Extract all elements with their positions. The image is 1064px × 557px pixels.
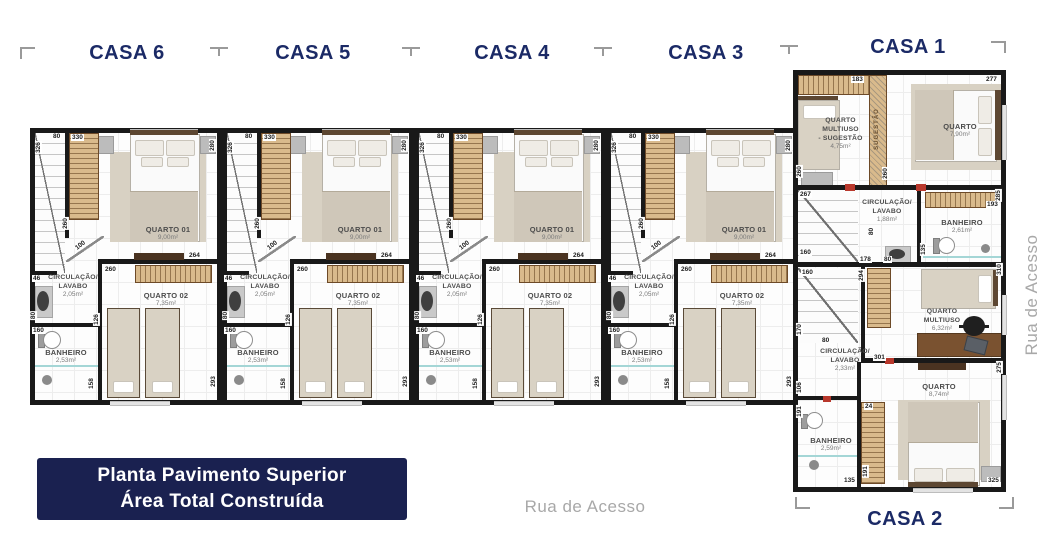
window: [494, 401, 554, 406]
corner-mark-icon: [999, 497, 1014, 509]
dim-label: 293: [402, 375, 409, 388]
unit-casa-3: QUARTO 01 9,00m² CIRCULAÇÃO/ LAVABO 2,05…: [606, 128, 798, 405]
title-box: Planta Pavimento Superior Área Total Con…: [37, 458, 407, 520]
room-label-circulacao: CIRCULAÇÃO/ LAVABO 2,05m²: [44, 273, 102, 299]
window: [686, 401, 746, 406]
dim-label: 264: [188, 252, 201, 259]
dim-label: 46: [224, 275, 233, 282]
header-casa-6: CASA 6: [57, 42, 197, 65]
unit-casa-5: QUARTO 01 9,00m² CIRCULAÇÃO/ LAVABO 2,05…: [222, 128, 414, 405]
dim-label: 80: [52, 133, 61, 140]
headboard: [908, 482, 978, 487]
dim-label: 178: [859, 256, 872, 263]
headboard: [995, 90, 1001, 160]
dresser-icon: [326, 253, 376, 260]
shower-glass: [611, 365, 674, 367]
room-label-circulacao-casa1: CIRCULAÇÃO/ LAVABO 1,88m²: [859, 198, 915, 224]
toilet-icon: [427, 331, 445, 349]
headboard: [798, 96, 838, 100]
wall-left: [793, 70, 798, 492]
room-label-quarto01: QUARTO 01 9,00m²: [509, 225, 595, 242]
dim-label: 267: [799, 191, 812, 198]
wall-left: [606, 128, 611, 405]
room-label-circulacao-casa2: CIRCULAÇÃO/ LAVABO 2,33m²: [817, 347, 873, 373]
toilet-icon: [619, 331, 637, 349]
headboard: [130, 130, 198, 135]
single-bed-icon: [683, 308, 716, 398]
room-label-banheiro-casa2: BANHEIRO 2,59m²: [805, 436, 857, 453]
dim-label: 310: [996, 263, 1003, 276]
room-label-circulacao: CIRCULAÇÃO/ LAVABO 2,05m²: [236, 273, 294, 299]
dresser-icon: [918, 363, 966, 370]
dim-label: 126: [669, 313, 676, 326]
dim-label: 80: [244, 133, 253, 140]
closet-icon: [135, 265, 212, 283]
shower-drain-icon: [234, 375, 244, 385]
shower-glass: [227, 365, 290, 367]
dim-label: 260: [296, 266, 309, 273]
dim-label: 158: [88, 377, 95, 390]
shower-glass: [798, 455, 857, 457]
shower-drain-icon: [618, 375, 628, 385]
closet-icon: [519, 265, 596, 283]
room-label-multiuso-casa1: QUARTO MULTIUSO - SUGESTÃO 4,75m²: [813, 116, 868, 151]
dim-label: 126: [477, 313, 484, 326]
dim-label: 135: [843, 477, 856, 484]
dim-label: 330: [263, 134, 276, 141]
headboard: [706, 130, 774, 135]
nightstand-icon: [674, 136, 690, 154]
shower-drain-icon: [42, 375, 52, 385]
tee-mark-icon: [210, 47, 228, 57]
single-bed-icon: [145, 308, 180, 398]
wall-left: [30, 128, 35, 405]
dim-label: 326: [35, 141, 42, 154]
headboard: [514, 130, 582, 135]
dim-label: 260: [254, 217, 261, 230]
dim-label: 126: [285, 313, 292, 326]
header-casa-2: CASA 2: [835, 508, 975, 531]
dim-label: 260: [638, 217, 645, 230]
door-marker: [885, 358, 894, 364]
window: [1002, 105, 1007, 160]
wall-top: [793, 70, 1006, 75]
closet-icon: [327, 265, 404, 283]
room-label-quarto02: QUARTO 02 7,35m²: [330, 291, 386, 308]
room-label-quarto01: QUARTO 01 9,00m²: [125, 225, 211, 242]
shower-drain-icon: [809, 460, 819, 470]
closet-icon: [711, 265, 788, 283]
dim-label: 260: [62, 217, 69, 230]
dim-label: 277: [985, 76, 998, 83]
room-label-banheiro-casa1: BANHEIRO 2,61m²: [933, 218, 991, 235]
dim-label: 264: [380, 252, 393, 259]
dim-label: 260: [796, 165, 803, 178]
wall-bottom: [793, 487, 1006, 492]
dim-label: 294: [858, 269, 865, 282]
corner-mark-icon: [991, 41, 1006, 53]
room-label-quarto01: QUARTO 01 9,00m²: [701, 225, 787, 242]
dim-label: 264: [572, 252, 585, 259]
door-marker: [845, 184, 855, 191]
shower-drain-icon: [426, 375, 436, 385]
nightstand-icon: [482, 136, 498, 154]
dim-label: 160: [416, 327, 429, 334]
room-label-circulacao: CIRCULAÇÃO/ LAVABO 2,05m²: [620, 273, 678, 299]
dim-label: 24: [864, 403, 873, 410]
stairs: [611, 133, 641, 273]
dim-label: 160: [799, 249, 812, 256]
dim-label: 326: [611, 141, 618, 154]
dim-label: 285: [995, 189, 1002, 202]
tee-mark-icon: [402, 47, 420, 57]
dim-label: 293: [594, 375, 601, 388]
dim-label: 126: [93, 313, 100, 326]
dim-label: 260: [680, 266, 693, 273]
dim-label: 80: [821, 337, 830, 344]
corner-mark-icon: [20, 47, 35, 59]
stairs: [35, 133, 65, 273]
casa-1-2-block: QUARTO MULTIUSO - SUGESTÃO 4,75m² SUGEST…: [793, 70, 1006, 492]
dim-label: 80: [628, 133, 637, 140]
dim-label: 46: [608, 275, 617, 282]
dim-label: 260: [446, 217, 453, 230]
toilet-icon: [43, 331, 61, 349]
window: [302, 401, 362, 406]
dim-label: 191: [862, 465, 869, 478]
dim-label: 330: [647, 134, 660, 141]
dim-label: 135: [920, 243, 927, 256]
dim-label: 325: [987, 477, 1000, 484]
header-casa-4: CASA 4: [442, 42, 582, 65]
dim-label: 80: [868, 227, 875, 236]
single-bed-icon: [491, 308, 524, 398]
dim-label: 326: [227, 141, 234, 154]
dim-label: 170: [796, 323, 803, 336]
room-label-quarto-casa1: QUARTO 7,90m²: [933, 122, 987, 139]
dim-label: 280: [209, 139, 216, 152]
dresser-icon: [134, 253, 184, 260]
header-casa-5: CASA 5: [243, 42, 383, 65]
dim-label: 191: [796, 405, 803, 418]
window: [1002, 375, 1007, 420]
stairs: [798, 268, 858, 343]
single-bed-icon: [337, 308, 372, 398]
wall-left: [414, 128, 419, 405]
street-label-bottom: Rua de Acesso: [500, 497, 670, 517]
room-label-circulacao: CIRCULAÇÃO/ LAVABO 2,05m²: [428, 273, 486, 299]
stairs: [227, 133, 257, 273]
wall-banheiro-casa2: [857, 362, 861, 487]
dim-label: 80: [414, 311, 421, 320]
title-line-1: Planta Pavimento Superior: [97, 463, 346, 489]
single-bed-icon: [921, 269, 996, 309]
wardrobe-icon: [453, 133, 483, 220]
room-label-quarto02: QUARTO 02 7,35m²: [522, 291, 578, 308]
header-casa-1: CASA 1: [838, 36, 978, 59]
room-label-multiuso-casa2: QUARTO MULTIUSO 6,32m²: [913, 307, 971, 333]
dim-label: 275: [996, 361, 1003, 374]
single-bed-icon: [529, 308, 564, 398]
dim-label: 160: [32, 327, 45, 334]
double-bed-icon: [908, 402, 980, 486]
shower-glass: [35, 365, 98, 367]
dim-label: 46: [32, 275, 41, 282]
dim-label: 280: [593, 139, 600, 152]
dim-label: 80: [30, 311, 37, 320]
headboard: [322, 130, 390, 135]
nightstand-icon: [98, 136, 114, 154]
room-label-banheiro: BANHEIRO 2,53m²: [424, 348, 476, 365]
tee-mark-icon: [594, 47, 612, 57]
door-marker: [916, 184, 926, 191]
sugestao-label: SUGESTÃO: [874, 94, 880, 164]
stairs: [419, 133, 449, 273]
floor-plan-canvas: CASA 6 CASA 5 CASA 4 CASA 3 CASA 1 CASA …: [0, 0, 1064, 557]
dim-label: 293: [210, 375, 217, 388]
unit-casa-6: QUARTO 01 9,00m² CIRCULAÇÃO/ LAVABO 2,05…: [30, 128, 222, 405]
dim-label: 80: [436, 133, 445, 140]
desk-icon: [917, 333, 1003, 357]
wall-casa-divider: [798, 262, 1001, 267]
single-bed-icon: [721, 308, 756, 398]
wardrobe-icon: [645, 133, 675, 220]
single-bed-icon: [107, 308, 140, 398]
wall-bedrooms-casa1: [798, 185, 1001, 190]
dim-label: 158: [280, 377, 287, 390]
corner-mark-icon: [795, 497, 810, 509]
room-label-quarto02: QUARTO 02 7,35m²: [714, 291, 770, 308]
window: [913, 488, 973, 493]
toilet-icon: [938, 237, 955, 254]
dim-label: 260: [104, 266, 117, 273]
room-label-banheiro: BANHEIRO 2,53m²: [232, 348, 284, 365]
window: [110, 401, 170, 406]
dim-label: 158: [664, 377, 671, 390]
dim-label: 193: [986, 201, 999, 208]
wardrobe-icon: [261, 133, 291, 220]
dim-label: 80: [606, 311, 613, 320]
dim-label: 80: [222, 311, 229, 320]
single-bed-icon: [299, 308, 332, 398]
dim-label: 326: [419, 141, 426, 154]
room-label-quarto01: QUARTO 01 9,00m²: [317, 225, 403, 242]
dim-label: 280: [785, 139, 792, 152]
dim-label: 260: [488, 266, 501, 273]
tee-mark-icon: [780, 45, 798, 55]
shower-drain-icon: [981, 244, 990, 253]
dim-label: 330: [71, 134, 84, 141]
dim-label: 301: [873, 354, 886, 361]
toilet-icon: [806, 412, 823, 429]
header-casa-3: CASA 3: [636, 42, 776, 65]
dim-label: 160: [801, 269, 814, 276]
title-line-2: Área Total Construída: [120, 489, 323, 515]
dim-label: 46: [416, 275, 425, 282]
shower-glass: [923, 256, 1001, 258]
dim-label: 293: [786, 375, 793, 388]
nightstand-icon: [290, 136, 306, 154]
wall-left: [222, 128, 227, 405]
dim-label: 280: [401, 139, 408, 152]
dim-label: 80: [883, 256, 892, 263]
room-label-banheiro: BANHEIRO 2,53m²: [40, 348, 92, 365]
unit-casa-4: QUARTO 01 9,00m² CIRCULAÇÃO/ LAVABO 2,05…: [414, 128, 606, 405]
street-label-right: Rua de Acesso: [1022, 195, 1042, 395]
window: [1002, 295, 1007, 335]
dim-label: 330: [455, 134, 468, 141]
dim-label: 106: [796, 381, 803, 394]
dim-label: 158: [472, 377, 479, 390]
dim-label: 160: [224, 327, 237, 334]
closet-icon: [867, 268, 891, 328]
dim-label: 260: [882, 167, 889, 180]
wardrobe-icon: [69, 133, 99, 220]
dim-label: 183: [851, 76, 864, 83]
dim-label: 264: [764, 252, 777, 259]
dim-label: 160: [608, 327, 621, 334]
door-marker: [823, 396, 831, 402]
dresser-icon: [710, 253, 760, 260]
room-label-banheiro: BANHEIRO 2,53m²: [616, 348, 668, 365]
dresser-icon: [518, 253, 568, 260]
shower-glass: [419, 365, 482, 367]
room-label-quarto-casa2: QUARTO 8,74m²: [911, 382, 967, 399]
room-label-quarto02: QUARTO 02 7,35m²: [138, 291, 194, 308]
toilet-icon: [235, 331, 253, 349]
